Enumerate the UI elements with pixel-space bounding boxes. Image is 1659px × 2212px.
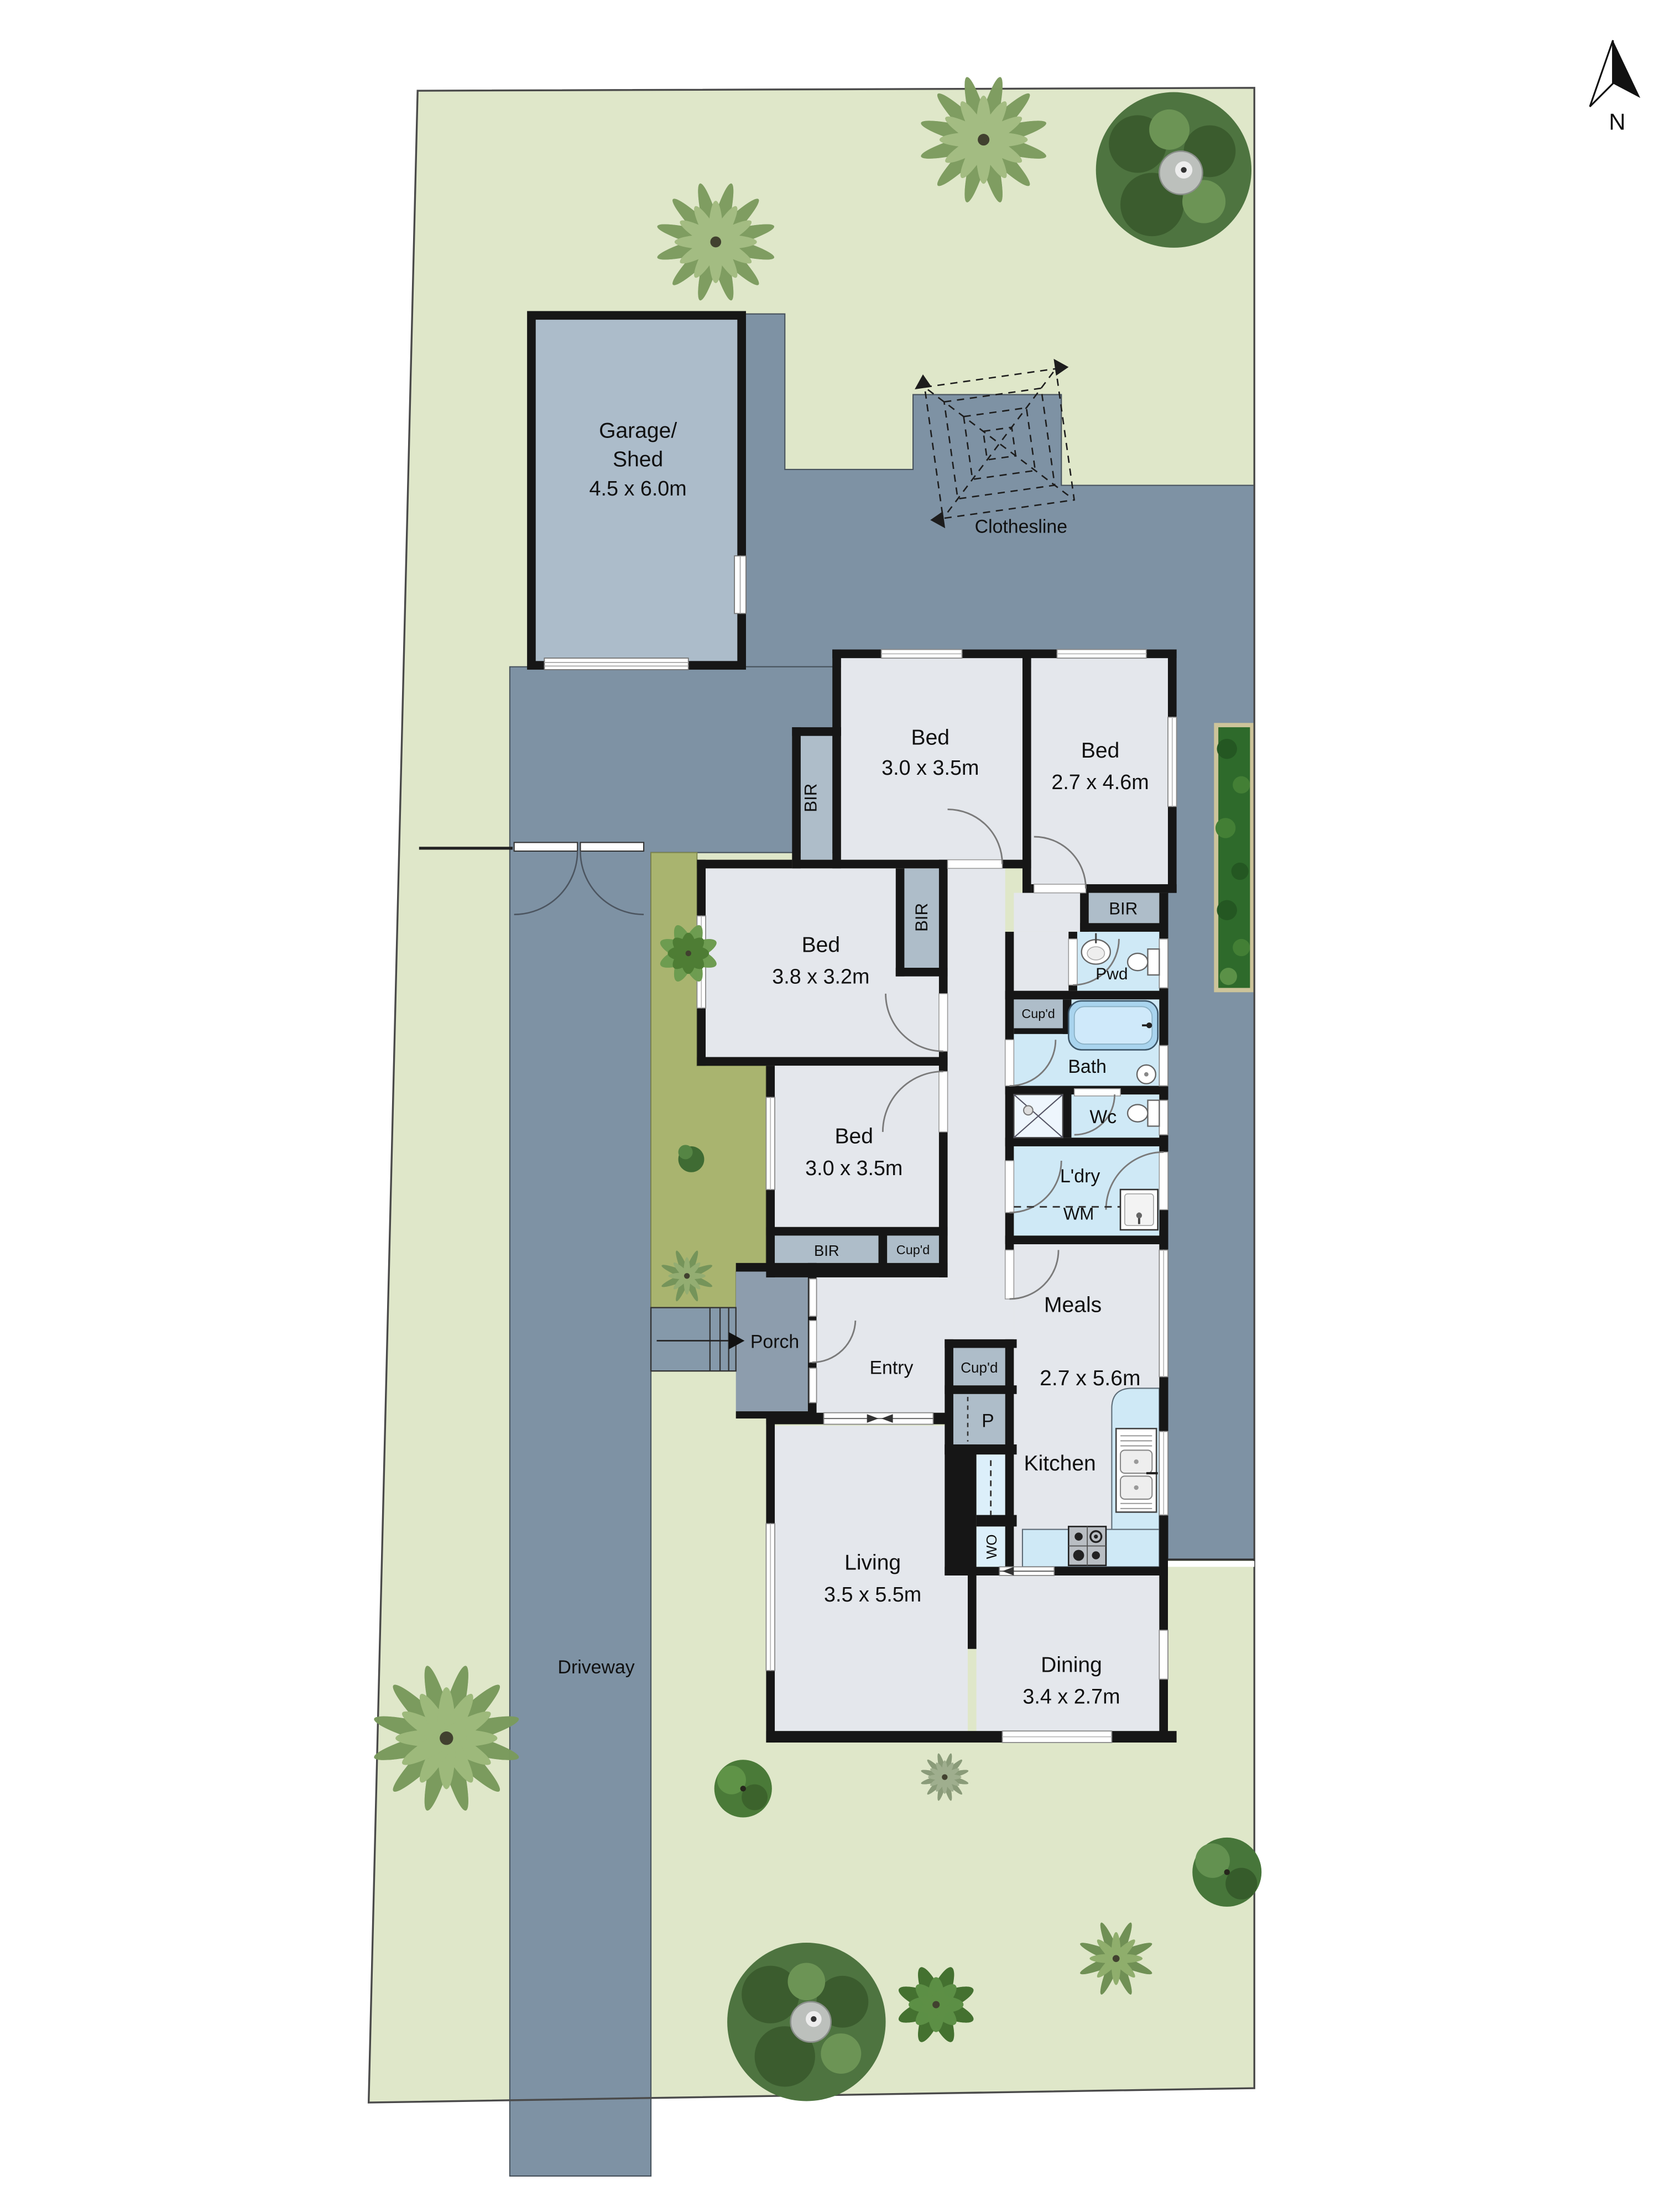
bush	[1192, 1838, 1261, 1907]
driveway-label: Driveway	[558, 1657, 635, 1678]
shade-tree	[727, 1943, 885, 2101]
bed1-label: Bed	[911, 726, 950, 749]
living-dims: 3.5 x 5.5m	[824, 1583, 921, 1606]
bath-label: Bath	[1068, 1056, 1107, 1077]
bir2-label: BIR	[1109, 899, 1138, 919]
wm-label: WM	[1063, 1204, 1094, 1224]
bed1-dims: 3.0 x 3.5m	[881, 757, 979, 780]
cupd3-label: Cup'd	[961, 1359, 998, 1376]
garage-label: Garage/	[599, 419, 677, 443]
bir1-label: BIR	[801, 784, 821, 812]
paving-end-gap	[1168, 1561, 1254, 1567]
north-arrow: N	[1590, 40, 1640, 134]
porch-steps	[651, 1308, 744, 1371]
entry-label: Entry	[869, 1357, 913, 1378]
clothesline-label: Clothesline	[975, 517, 1067, 538]
bed3-label: Bed	[802, 933, 840, 957]
meals-dims: 2.7 x 5.6m	[1040, 1366, 1140, 1390]
hedge	[1214, 723, 1254, 992]
kitchen-label: Kitchen	[1024, 1452, 1096, 1475]
cupd2-label: Cup'd	[896, 1243, 930, 1257]
porch-label: Porch	[750, 1331, 799, 1352]
garage-window	[734, 556, 746, 613]
bed4-label: Bed	[835, 1125, 873, 1149]
dining-label: Dining	[1041, 1653, 1102, 1677]
floor-plan-page: Garage/ Shed 4.5 x 6.0m Clothesline Bed …	[0, 0, 1659, 2212]
wo-label: WO	[983, 1534, 1000, 1559]
meals-label: Meals	[1044, 1293, 1102, 1317]
bush	[714, 1760, 772, 1817]
cupd1-label: Cup'd	[1021, 1006, 1055, 1021]
garage-label2: Shed	[613, 448, 663, 472]
bir4-label: BIR	[814, 1242, 839, 1259]
dining-dims: 3.4 x 2.7m	[1022, 1686, 1120, 1709]
kitchen-sink	[1116, 1428, 1158, 1512]
pantry-label: P	[982, 1411, 994, 1432]
floor-plan-canvas: Garage/ Shed 4.5 x 6.0m Clothesline Bed …	[0, 0, 1659, 2212]
north-label: N	[1609, 108, 1625, 134]
ldry-label: L'dry	[1060, 1166, 1100, 1187]
bed4-dims: 3.0 x 3.5m	[805, 1157, 902, 1180]
pwd-label: Pwd	[1095, 965, 1128, 983]
stove	[1068, 1526, 1106, 1565]
garage-dims: 4.5 x 6.0m	[589, 477, 687, 500]
wc-label: Wc	[1089, 1107, 1117, 1128]
bir3-label: BIR	[912, 903, 931, 932]
bed3-dims: 3.8 x 3.2m	[772, 966, 869, 989]
bed2-dims: 2.7 x 4.6m	[1051, 771, 1149, 794]
garage-door	[544, 658, 688, 670]
living-label: Living	[844, 1551, 901, 1575]
bed2-label: Bed	[1081, 739, 1119, 763]
shade-tree	[1096, 92, 1251, 248]
